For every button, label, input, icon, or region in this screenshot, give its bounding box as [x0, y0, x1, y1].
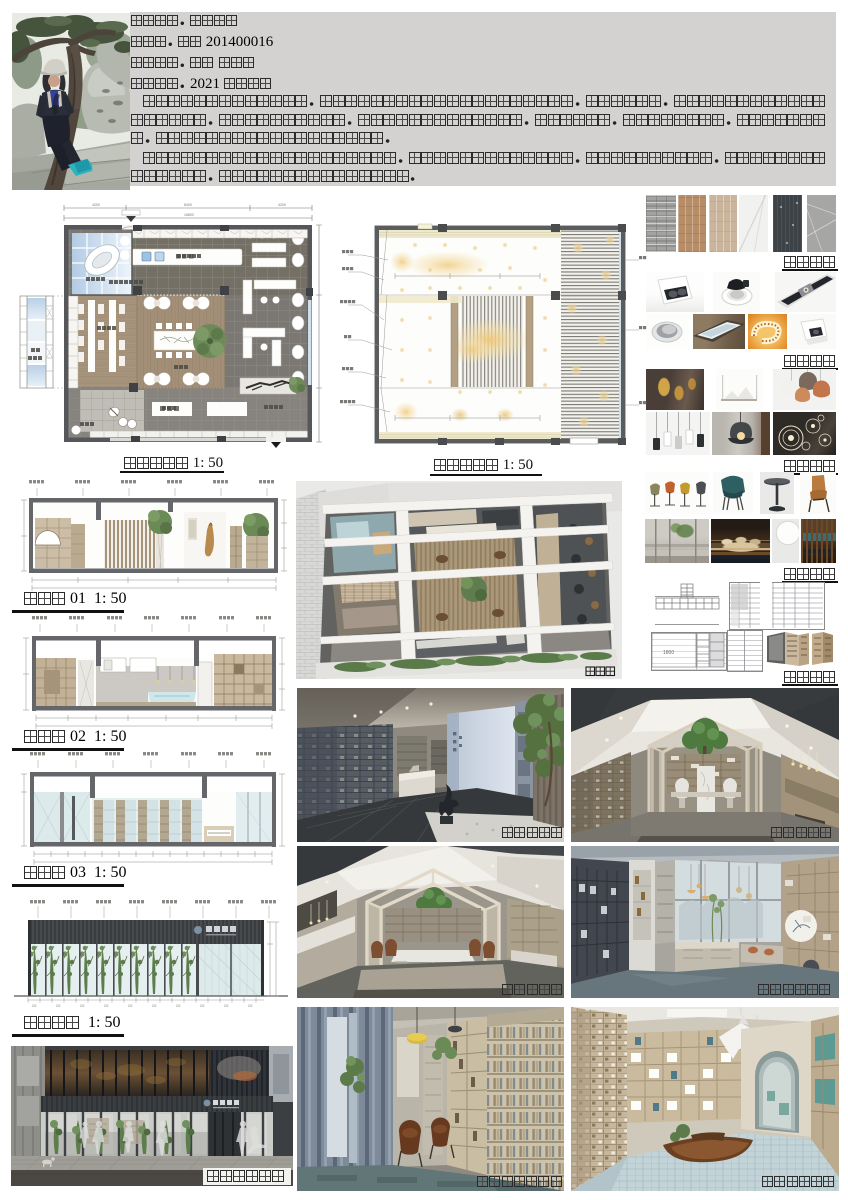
- svg-text:25: 25: [224, 1003, 229, 1008]
- svg-text:4200: 4200: [92, 203, 100, 207]
- svg-text:25: 25: [248, 1003, 253, 1008]
- svg-text:25: 25: [80, 1003, 85, 1008]
- svg-text:25: 25: [56, 1003, 61, 1008]
- svg-text:25: 25: [176, 1003, 181, 1008]
- svg-text:8400: 8400: [184, 203, 192, 207]
- svg-text:25: 25: [200, 1003, 205, 1008]
- svg-text:25: 25: [32, 1003, 37, 1008]
- svg-text:25: 25: [152, 1003, 157, 1008]
- svg-text:25: 25: [128, 1003, 133, 1008]
- svg-text:1800: 1800: [663, 650, 674, 656]
- svg-text:25: 25: [104, 1003, 109, 1008]
- svg-text:16800: 16800: [184, 213, 194, 217]
- svg-text:4200: 4200: [278, 203, 286, 207]
